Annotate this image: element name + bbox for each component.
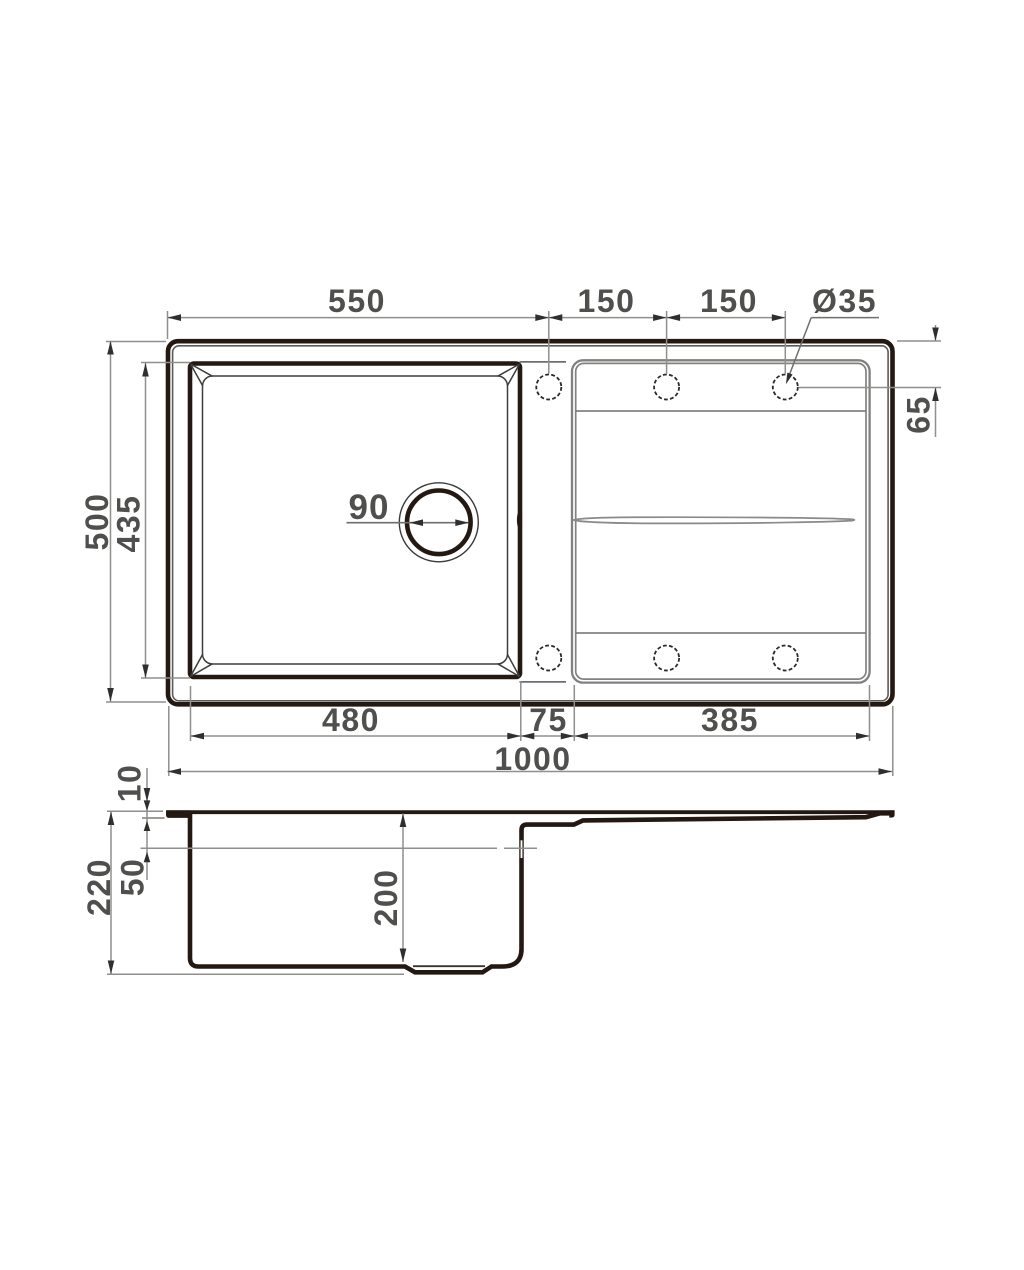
svg-text:220: 220 [81, 858, 117, 916]
svg-text:385: 385 [701, 702, 759, 738]
svg-text:550: 550 [328, 283, 386, 319]
svg-text:Ø35: Ø35 [812, 283, 877, 319]
svg-text:1000: 1000 [494, 741, 571, 777]
svg-text:50: 50 [115, 858, 151, 897]
svg-text:10: 10 [112, 764, 148, 803]
svg-text:200: 200 [368, 869, 404, 927]
svg-text:435: 435 [111, 495, 147, 553]
svg-text:150: 150 [700, 283, 758, 319]
svg-text:65: 65 [901, 395, 937, 434]
svg-text:75: 75 [529, 702, 568, 738]
svg-text:150: 150 [578, 283, 636, 319]
svg-text:480: 480 [322, 702, 380, 738]
svg-text:90: 90 [349, 488, 390, 527]
